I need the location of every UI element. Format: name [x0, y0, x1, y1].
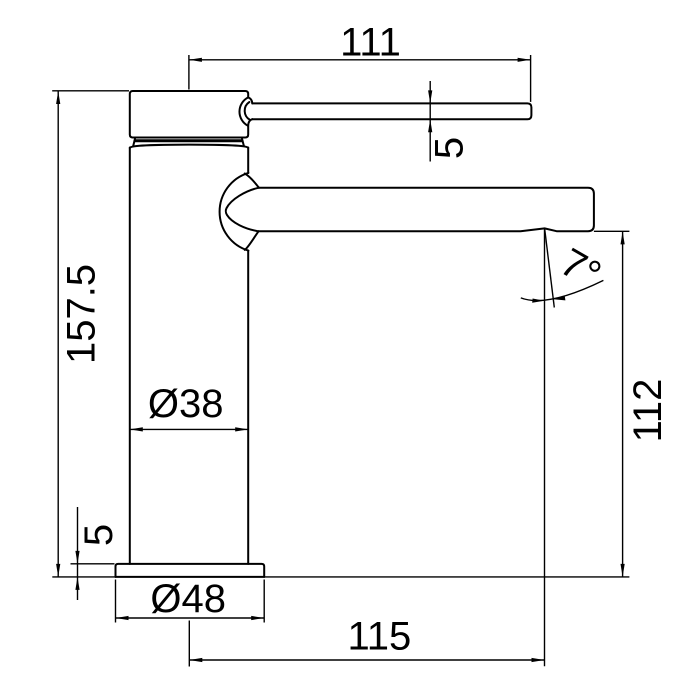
svg-text:115: 115: [348, 614, 412, 658]
svg-text:111: 111: [340, 20, 401, 64]
svg-text:5: 5: [77, 524, 121, 546]
svg-text:5: 5: [428, 137, 472, 159]
svg-text:7°: 7°: [553, 240, 608, 297]
svg-text:157.5: 157.5: [60, 264, 104, 364]
svg-text:Ø38: Ø38: [148, 382, 224, 426]
svg-text:Ø48: Ø48: [150, 577, 226, 621]
svg-text:112: 112: [626, 379, 670, 443]
